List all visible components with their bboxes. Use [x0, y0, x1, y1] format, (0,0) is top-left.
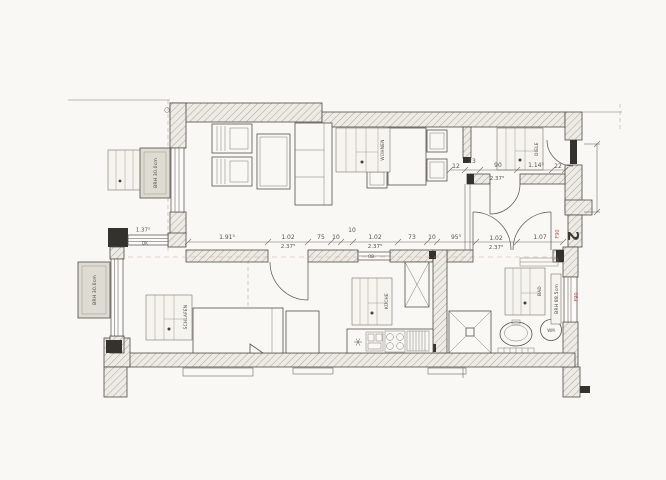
- room-name: KÜCHE: [384, 293, 389, 309]
- scanned-floor-plan-sheet: WM WOHNEN DIELE SCHLAFEN K: [0, 0, 666, 480]
- sofa-symbol: [295, 123, 332, 205]
- dimension-label: 2.37⁵: [490, 175, 504, 182]
- parapet-label-top-left: BRH 30.0cm: [140, 148, 170, 198]
- washing-machine-label: WM: [547, 328, 555, 333]
- room-label-table-kitchen: KÜCHE: [352, 278, 392, 325]
- window-schedule-table: [108, 150, 142, 190]
- coffee-table-symbol: [257, 134, 290, 189]
- dimension-label: 90: [494, 162, 502, 169]
- dresser-symbol: [286, 311, 319, 353]
- room-name: BAD: [537, 286, 542, 296]
- living-room-furniture: [212, 123, 447, 205]
- bedroom-furniture: [193, 308, 319, 353]
- shower-symbol: [449, 311, 491, 353]
- dimension-chain-main: 1.91⁵ 1.02 2.37⁵ 75 10 10 1.02 2.37⁵ 73 …: [185, 227, 566, 251]
- dimension-label: 1.91⁵: [219, 234, 235, 241]
- room-label-table-living: WOHNEN: [336, 128, 390, 172]
- entry-door-leaf: [570, 140, 577, 164]
- dimension-label: 10: [348, 227, 356, 234]
- svg-text:BRH 88.5cm: BRH 88.5cm: [554, 284, 560, 314]
- armchair-symbol: [212, 124, 252, 153]
- parapet-label-bottom-left: BRH 30.0cm: [78, 262, 110, 318]
- dimension-label: 75: [317, 234, 325, 241]
- dimension-label: 22: [554, 163, 562, 170]
- svg-text:BRH 30.0cm: BRH 30.0cm: [92, 275, 98, 305]
- fire-rating-label: F90: [574, 292, 580, 301]
- fire-rating-label: F90: [555, 229, 561, 238]
- room-label-table-bath: BAD: [505, 268, 545, 315]
- room-name: SCHLAFEN: [183, 305, 188, 330]
- dimension-label: 1.14⁵: [528, 162, 544, 169]
- tall-cupboard-symbol: [405, 262, 429, 307]
- kitchen-opening-label: OB: [368, 254, 374, 259]
- room-name: DIELE: [534, 142, 539, 156]
- dimension-label: 10: [428, 234, 436, 241]
- dimension-label: 1.07: [533, 234, 547, 241]
- dimension-label: 10: [332, 234, 340, 241]
- window-type-label: DK: [142, 241, 148, 246]
- svg-text:BRH 30.0cm: BRH 30.0cm: [153, 158, 159, 188]
- apartment-number: 2: [564, 231, 582, 241]
- dimension-label: 1.02: [368, 234, 382, 241]
- dimension-label: 2.37⁵: [368, 243, 382, 250]
- dimension-label: 95⁵: [451, 234, 462, 241]
- dimension-label: 12: [452, 163, 460, 170]
- dimension-label: 1.02: [281, 234, 295, 241]
- dimension-label: 73: [408, 234, 416, 241]
- parapet-label-right: BRH 88.5cm: [551, 274, 561, 324]
- washbasin-symbol: [500, 320, 532, 346]
- room-label-table-bedroom: SCHLAFEN: [146, 295, 192, 340]
- towel-radiator-symbol: [520, 258, 558, 266]
- window-width-label: 1.37⁵: [136, 227, 150, 234]
- dimension-label: 1.02: [489, 235, 503, 242]
- bed-symbol: [193, 308, 283, 353]
- dimension-label: 2.37⁵: [281, 243, 295, 250]
- room-name: WOHNEN: [380, 139, 385, 160]
- radiator-symbol: [498, 348, 534, 353]
- dimension-label: 2.37⁵: [489, 244, 503, 251]
- floor-plan: WM WOHNEN DIELE SCHLAFEN K: [0, 0, 666, 480]
- dimension-label: 23: [468, 158, 476, 165]
- armchair-symbol: [212, 157, 252, 186]
